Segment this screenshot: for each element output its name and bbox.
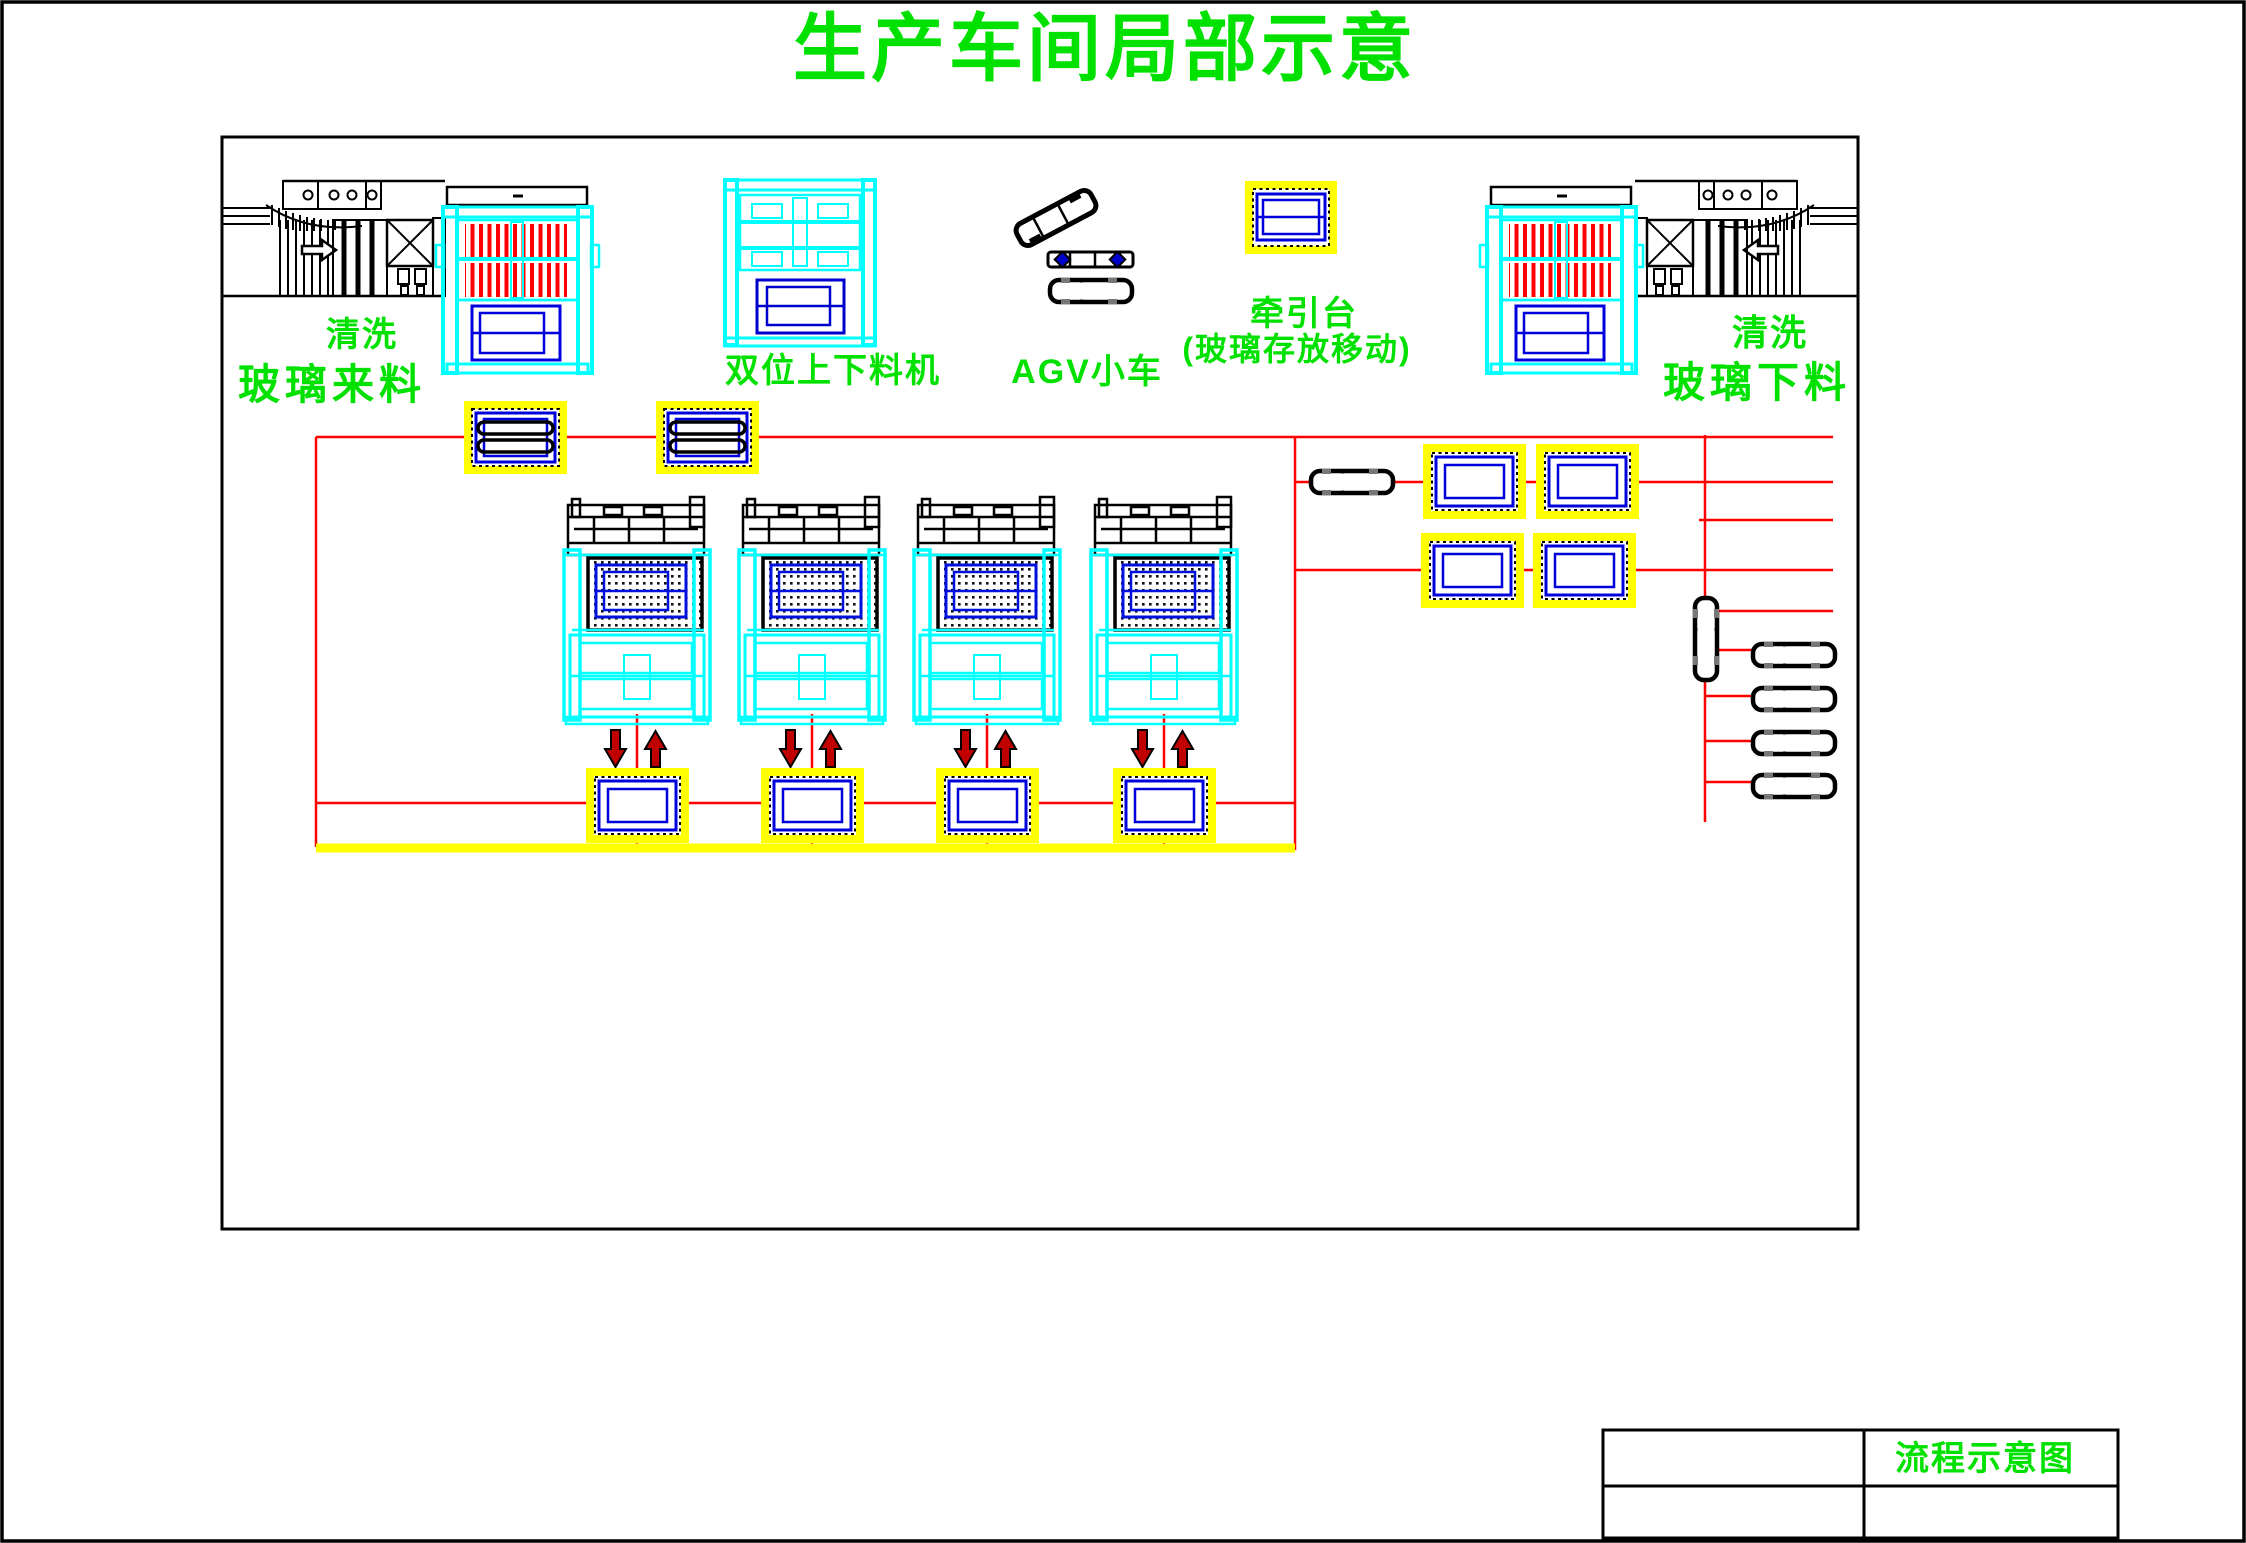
label-agv-cart: AGV小车 [1011,355,1163,389]
right-glass-rack [1480,187,1643,373]
arrows-machine-4 [1132,730,1193,767]
drawing-title: 流程示意图 [1895,1442,2075,1476]
storage-station-2 [1540,448,1635,515]
agv-front-view [1048,252,1133,268]
agv-cart-roaming [1311,469,1393,495]
machining-center-4 [1091,497,1237,724]
drawing-page: 生产车间局部示意 清洗 玻璃来料 双位上下料机 AGV小车 牵引台 (玻璃存放移… [0,0,2246,1543]
storage-station-1 [1427,448,1522,515]
output-station-3 [940,772,1035,839]
agv-isometric-view [1012,186,1099,250]
output-station-1 [590,772,685,839]
agv-cart-dock-1 [1753,642,1835,668]
left-washing-machine [222,181,445,296]
arrows-machine-1 [605,730,666,767]
label-dual-loader: 双位上下料机 [725,354,941,388]
machining-center-3 [914,497,1060,724]
agv-cart-dock-4 [1753,773,1835,799]
agv-station-2 [660,405,755,470]
label-glass-outfeed: 玻璃下料 [1663,362,1851,404]
arrows-machine-3 [955,730,1016,767]
label-glass-infeed: 玻璃来料 [238,364,426,406]
dual-loader-machine [725,180,875,346]
storage-station-3 [1425,537,1520,604]
traction-table-box [1249,185,1333,250]
storage-station-4 [1537,537,1632,604]
right-washing-machine [1635,181,1858,296]
arrows-machine-2 [780,730,841,767]
agv-top-view [1050,278,1132,304]
label-wash-right: 清洗 [1732,315,1808,351]
label-traction-table: 牵引台 [1250,297,1358,331]
agv-cart-dock-3 [1753,730,1835,756]
output-station-4 [1117,772,1212,839]
label-wash-left: 清洗 [326,318,398,352]
workshop-drawing [0,0,2246,1543]
machining-center-2 [739,497,885,724]
page-title: 生产车间局部示意 [793,12,1417,86]
output-station-2 [765,772,860,839]
agv-station-1 [468,405,563,470]
machining-center-1 [564,497,710,724]
agv-cart-dock-2 [1753,686,1835,712]
agv-cart-vertical [1693,598,1719,680]
label-traction-note: (玻璃存放移动) [1182,333,1411,365]
left-glass-rack [436,187,599,373]
